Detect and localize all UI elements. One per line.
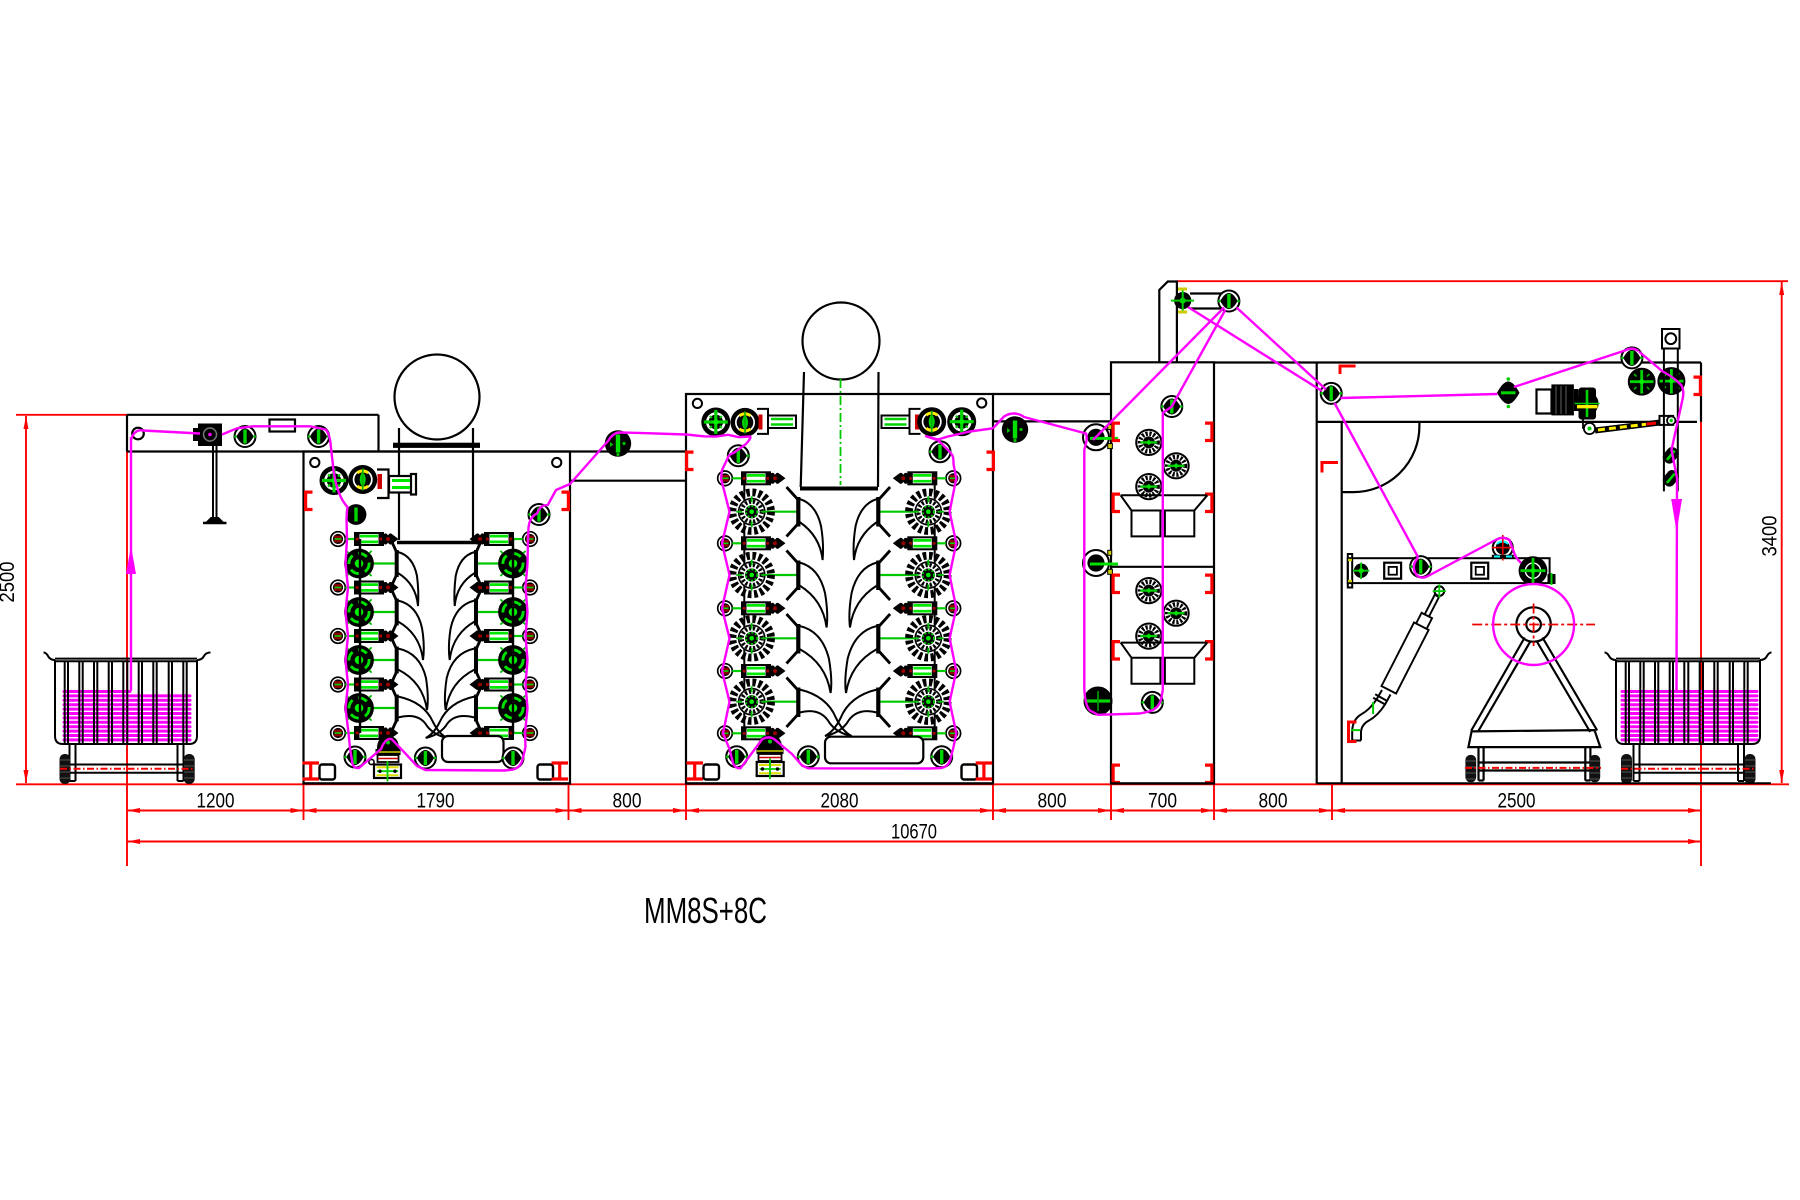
- svg-text:2500: 2500: [0, 562, 19, 603]
- svg-text:800: 800: [1038, 790, 1067, 813]
- svg-text:2500: 2500: [1498, 790, 1536, 813]
- svg-text:1790: 1790: [417, 790, 455, 813]
- svg-text:1200: 1200: [197, 790, 235, 813]
- svg-text:3400: 3400: [1759, 516, 1782, 557]
- svg-text:10670: 10670: [891, 821, 937, 844]
- svg-text:800: 800: [1259, 790, 1288, 813]
- svg-text:MM8S+8C: MM8S+8C: [644, 890, 767, 931]
- svg-text:2080: 2080: [821, 790, 859, 813]
- svg-text:700: 700: [1148, 790, 1177, 813]
- svg-text:800: 800: [613, 790, 642, 813]
